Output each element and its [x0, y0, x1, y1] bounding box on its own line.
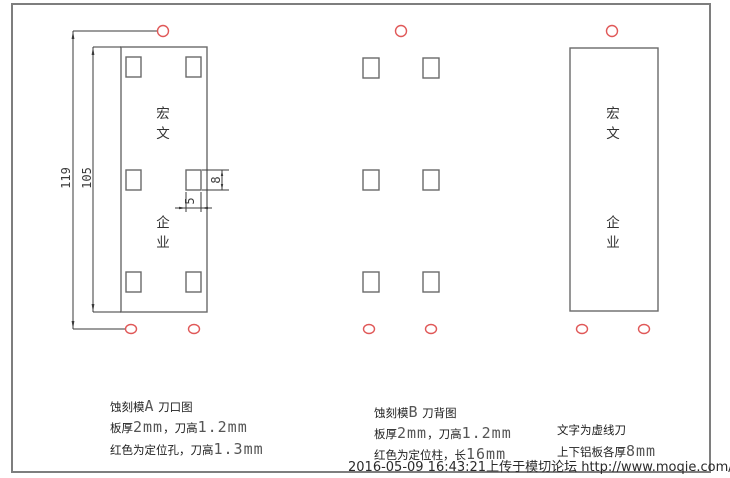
note-a-title: 蚀刻模A 刀口图 — [110, 398, 193, 415]
dimension-lines — [73, 31, 229, 329]
note-a-red-value: 1.3mm — [214, 440, 264, 458]
die-b-slot — [423, 58, 439, 78]
note-c-dashed: 文字为虚线刀 — [557, 422, 626, 438]
note-a-thickness-label: 板厚 — [110, 421, 133, 435]
die-a-slot — [186, 170, 201, 190]
note-b-title: 蚀刻模B 刀背图 — [374, 404, 457, 421]
note-a-thickness-value: 2mm — [133, 418, 163, 436]
upload-watermark: 2016-05-09 16:43:21上传于模切论坛 http://www.mo… — [348, 456, 730, 475]
die-a-slot — [126, 272, 141, 292]
dim-label-slot-width: 5 — [183, 197, 197, 204]
note-a-title-text: 蚀刻模 — [110, 400, 145, 414]
locating-hole — [126, 325, 137, 334]
locating-hole — [577, 325, 588, 334]
die-c-brand-bottom: 企业 — [605, 213, 621, 253]
note-c-dashed-text: 文字为虚线刀 — [557, 423, 626, 437]
die-c-outline — [570, 48, 658, 311]
note-b-bladeheight-value: 1.2mm — [462, 424, 512, 442]
locating-holes — [126, 26, 650, 334]
locating-hole — [426, 325, 437, 334]
note-b-title-text: 蚀刻模 — [374, 406, 409, 420]
note-b-thickness: 板厚2mm，刀高1.2mm — [374, 425, 512, 442]
dim-label-total-height: 119 — [59, 167, 73, 189]
locating-hole — [396, 26, 407, 37]
note-a-bladeheight-label: ，刀高 — [163, 421, 198, 435]
locating-hole — [364, 325, 375, 334]
note-b-thickness-value: 2mm — [397, 424, 427, 442]
locating-hole — [607, 26, 618, 37]
dim-label-plate-height: 105 — [80, 167, 94, 189]
note-b-bladeheight-label: ，刀高 — [427, 427, 462, 441]
note-a-title-letter: A — [145, 397, 155, 415]
drawing-canvas: 119 105 8 5 宏文 企业 宏文 企业 蚀刻模A 刀口图 板厚2mm，刀… — [0, 0, 730, 478]
note-a-thickness: 板厚2mm，刀高1.2mm — [110, 419, 248, 436]
die-b-slot — [363, 58, 379, 78]
die-b-slot — [363, 272, 379, 292]
die-b-slot — [363, 170, 379, 190]
note-b-thickness-label: 板厚 — [374, 427, 397, 441]
die-a-slot — [186, 272, 201, 292]
die-c-brand-top: 宏文 — [605, 104, 621, 144]
dim-label-slot-height: 8 — [209, 176, 223, 183]
die-b-slot — [423, 170, 439, 190]
note-a-red: 红色为定位孔，刀高1.3mm — [110, 441, 264, 458]
locating-hole — [639, 325, 650, 334]
die-b-slots — [363, 58, 439, 292]
note-a-bladeheight-value: 1.2mm — [198, 418, 248, 436]
die-a-brand-bottom: 企业 — [155, 213, 171, 253]
die-a-slot — [186, 57, 201, 77]
die-b-slot — [423, 272, 439, 292]
die-a-slot — [126, 57, 141, 77]
note-b-title-suffix: 刀背图 — [419, 406, 457, 420]
die-a-slot — [126, 170, 141, 190]
note-b-title-letter: B — [409, 403, 419, 421]
die-a-plate — [121, 47, 207, 312]
locating-hole — [158, 26, 169, 37]
locating-hole — [189, 325, 200, 334]
note-a-title-suffix: 刀口图 — [155, 400, 193, 414]
note-a-red-label: 红色为定位孔，刀高 — [110, 443, 214, 457]
die-c-plate — [570, 48, 658, 311]
die-a-brand-top: 宏文 — [155, 104, 171, 144]
